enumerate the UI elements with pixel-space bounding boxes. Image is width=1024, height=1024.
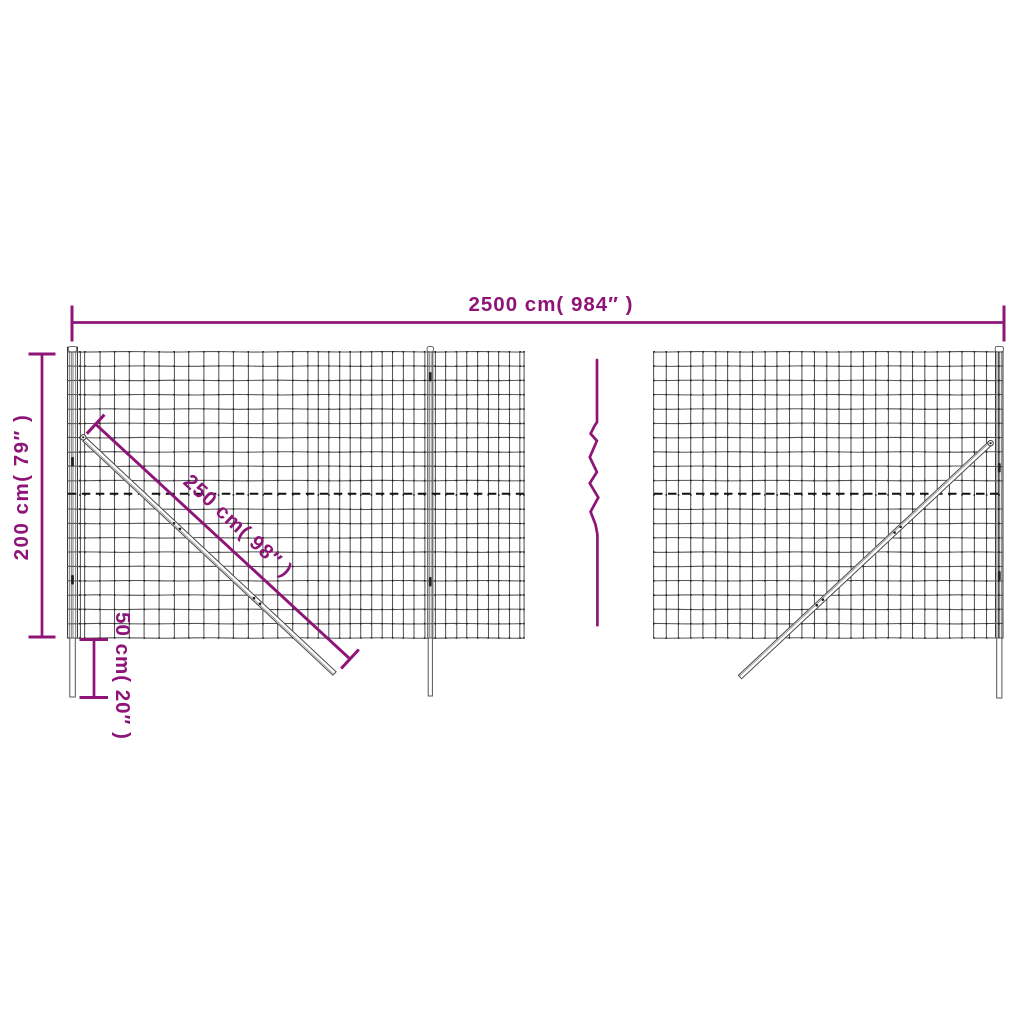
svg-text:200 cm( 79″ ): 200 cm( 79″ ) xyxy=(10,414,33,561)
svg-text:2500 cm( 984″ ): 2500 cm( 984″ ) xyxy=(469,293,634,316)
svg-text:50 cm( 20″ ): 50 cm( 20″ ) xyxy=(111,612,134,740)
